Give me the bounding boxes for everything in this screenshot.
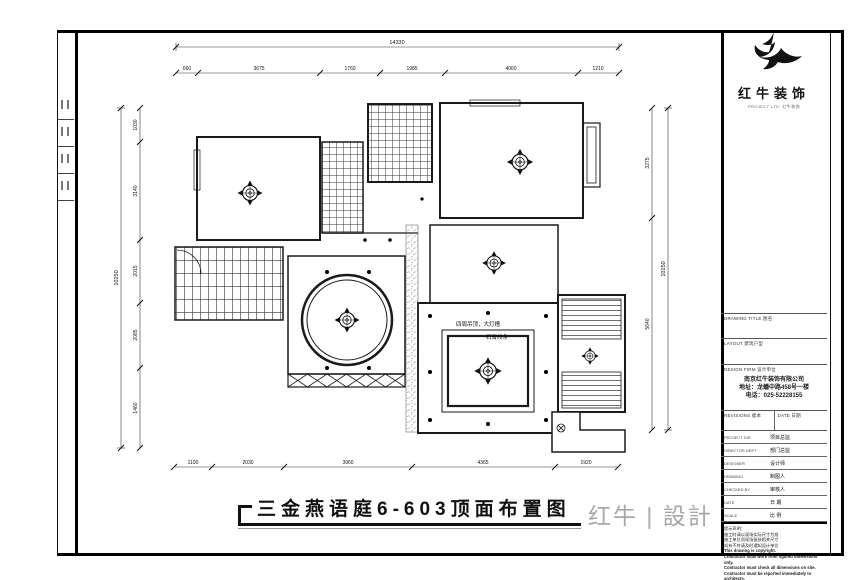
drawing-sheet: 四周吊顶，大灯槽 石膏线条 xyxy=(0,0,860,580)
balcony-panel-ceiling xyxy=(175,247,283,320)
bull-logo-icon xyxy=(744,30,804,76)
brand-subtitle: PROJECT LTD. 红牛装饰 xyxy=(721,104,827,110)
date-col-label: DATE 日期 xyxy=(778,413,801,418)
company-phone: 电话：025-52228155 xyxy=(724,392,824,400)
sheet-title-text: 三金燕语庭6-603顶面布置图 xyxy=(257,494,571,521)
svg-text:10250: 10250 xyxy=(661,261,667,276)
layout-label: LAYOUT 建筑户型 xyxy=(724,341,763,346)
svg-text:2085: 2085 xyxy=(133,329,139,340)
svg-text:5640: 5640 xyxy=(645,318,651,329)
svg-text:14330: 14330 xyxy=(389,40,404,46)
svg-text:1760: 1760 xyxy=(344,66,355,72)
svg-text:1920: 1920 xyxy=(580,460,591,466)
frame-right xyxy=(841,30,844,556)
svg-text:1100: 1100 xyxy=(188,460,199,466)
company-name: 南京红牛装饰有限公司 xyxy=(724,376,824,384)
svg-text:4060: 4060 xyxy=(505,66,516,72)
title-block: DRAWING TITLE 图名 LAYOUT 建筑户型 DESIGN FIRM… xyxy=(721,313,827,553)
notes-block: 提示声明： 施工时请以现场实际尺寸为准 施工单位须现场复核相关尺寸 如有不符请及… xyxy=(721,524,827,580)
personnel-rows: PROJECT DIR项目总监 DIRECTOR DEPT部门总监 DESIGN… xyxy=(721,431,827,522)
brand-name: 红牛装饰 xyxy=(721,83,827,102)
frame-left xyxy=(75,30,78,553)
svg-text:1460: 1460 xyxy=(133,402,139,413)
revisions-label: REVISIONS 版本 xyxy=(724,413,761,418)
design-firm-label: DESIGN FIRM 设计单位 xyxy=(724,367,776,372)
sheet-title: 三金燕语庭6-603顶面布置图 xyxy=(238,494,581,529)
svg-text:3140: 3140 xyxy=(133,185,139,196)
svg-text:2015: 2015 xyxy=(133,265,139,276)
svg-text:四周吊顶，大灯槽: 四周吊顶，大灯槽 xyxy=(456,320,501,328)
svg-text:1210: 1210 xyxy=(592,66,603,72)
drawing-title-label: DRAWING TITLE 图名 xyxy=(724,316,772,321)
studio-logo-text: 红牛 | 設計 xyxy=(588,497,713,531)
bedroom-topleft xyxy=(197,137,320,240)
walls-and-rooms xyxy=(175,100,625,452)
svg-text:4365: 4365 xyxy=(477,460,488,466)
bay-window xyxy=(583,123,600,187)
svg-text:10250: 10250 xyxy=(114,270,120,285)
svg-text:2030: 2030 xyxy=(242,460,253,466)
brand-block: 红牛装饰 PROJECT LTD. 红牛装饰 xyxy=(721,30,827,122)
svg-text:3275: 3275 xyxy=(645,157,651,168)
svg-text:1985: 1985 xyxy=(406,66,417,72)
utility-room xyxy=(552,412,625,452)
svg-text:3675: 3675 xyxy=(253,66,264,72)
company-address: 地址：龙蟠中路458号一楼 xyxy=(724,384,824,392)
svg-text:石膏线条: 石膏线条 xyxy=(486,333,509,341)
svg-text:660: 660 xyxy=(183,66,192,72)
stipple-band xyxy=(406,225,418,432)
grid-ceiling-a xyxy=(322,142,363,233)
svg-text:3960: 3960 xyxy=(342,460,353,466)
x-brace-band xyxy=(288,374,405,387)
grid-ceiling-b xyxy=(368,104,432,182)
title-bracket-icon xyxy=(238,505,252,523)
svg-text:1030: 1030 xyxy=(133,119,139,130)
